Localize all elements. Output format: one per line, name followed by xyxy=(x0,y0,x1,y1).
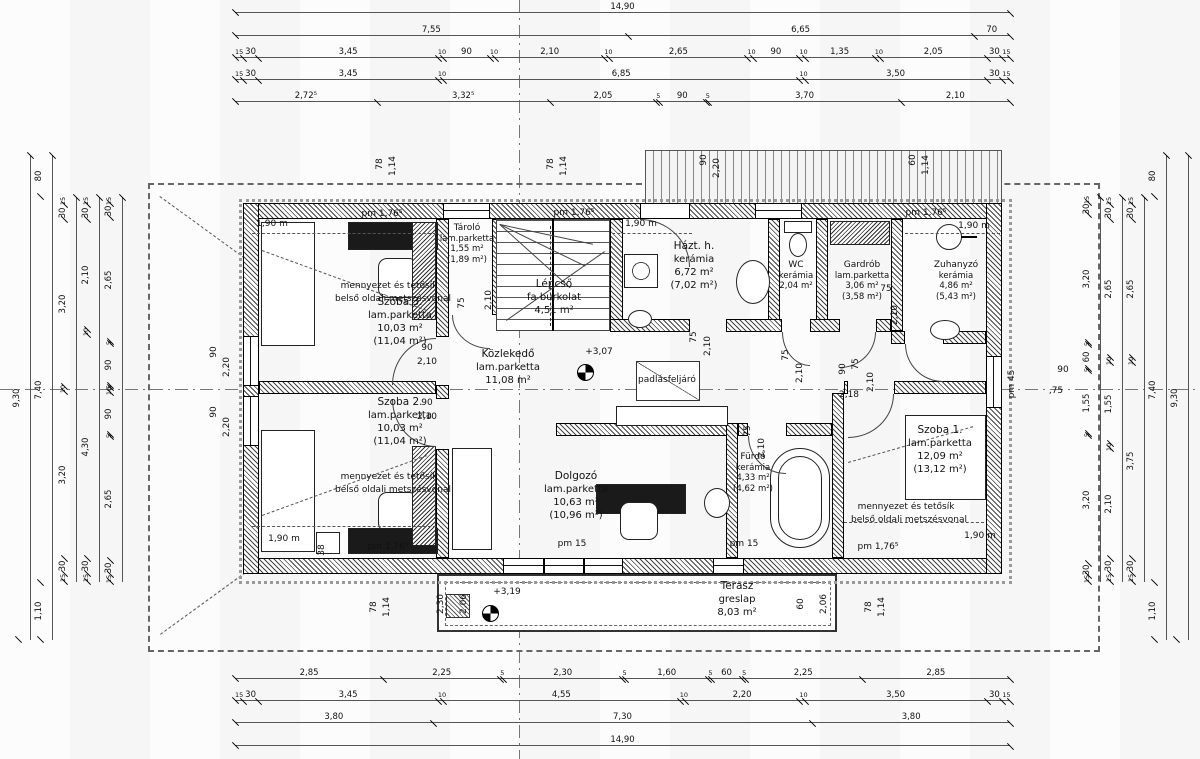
dim-segment: 15 xyxy=(65,574,77,582)
dim-segment: 90 xyxy=(659,90,706,102)
dim-label: 30 xyxy=(1082,565,1092,576)
dim-label: 30 xyxy=(58,561,68,572)
dim-label: 1,55 xyxy=(1082,393,1092,412)
plan-label: 2,20 xyxy=(222,417,232,437)
dim-label: 2,10 xyxy=(81,266,91,285)
dim-chain-right-total: 9,30 xyxy=(1188,155,1189,640)
dim-label: 15 xyxy=(1083,575,1091,583)
dim-chain-left-openings: 15302,655905109052,653015 xyxy=(122,197,123,582)
plan-label: 1,14 xyxy=(921,155,931,175)
plan-label: ,75 xyxy=(1049,386,1063,396)
dim-segment: 90 xyxy=(111,393,123,435)
dim-segment: 30 xyxy=(1133,205,1145,221)
dim-segment: 3,20 xyxy=(65,392,77,558)
plan-label: 1,14 xyxy=(559,156,569,176)
dim-segment: 15 xyxy=(1089,576,1101,582)
dim-segment: 15 xyxy=(1111,574,1123,582)
plan-label: 78 xyxy=(369,601,379,612)
dim-label: 30 xyxy=(104,206,114,217)
dim-label: 15 xyxy=(82,197,90,205)
dim-label: 1,10 xyxy=(1148,602,1158,621)
dim-label: 30 xyxy=(1082,204,1092,215)
dim-segment: 3,70 xyxy=(708,90,900,102)
dim-segment: 3,75 xyxy=(1133,363,1145,558)
plan-label: pm 1,76⁵ xyxy=(554,208,595,218)
dim-label: 30 xyxy=(1126,561,1136,572)
dim-segment: 80 xyxy=(41,155,53,197)
room-area-gross: (5,43 m²) xyxy=(934,292,978,303)
plan-label: padlásfeljáró xyxy=(638,375,696,385)
wall xyxy=(810,319,840,332)
dim-segment: 3,80 xyxy=(235,711,433,723)
dim-segment: 1,55 xyxy=(1089,371,1101,433)
dim-segment: 30 xyxy=(88,559,100,575)
dim-label: 15 xyxy=(59,197,67,205)
plan-label: 1,90 m xyxy=(958,221,990,231)
dim-label: 15 xyxy=(1127,574,1135,582)
dim-segment: 3,20 xyxy=(1089,215,1101,343)
plan-label: 75 xyxy=(880,284,891,294)
plan-label: 78 xyxy=(546,158,556,169)
plan-label: belső oldali metszésvonal xyxy=(335,485,451,495)
dim-chain-bottom-thirds: 3,807,303,80 xyxy=(235,722,1010,723)
dim-segment: 30 xyxy=(987,68,1003,80)
wall xyxy=(891,331,905,344)
sofa xyxy=(452,448,492,550)
bed xyxy=(261,222,315,346)
dim-label: 3,20 xyxy=(1082,490,1092,509)
dim-segment: 1,10 xyxy=(41,583,53,640)
dim-chain-bottom-detail: 2,852,2552,3051,6056052,252,85 xyxy=(235,678,1010,679)
room-name: Közlekedő xyxy=(476,348,540,361)
height-line xyxy=(905,233,1000,234)
dim-label: 15 xyxy=(1105,197,1113,205)
room-area: 12,09 m² xyxy=(908,450,972,463)
plan-label: 90 xyxy=(838,363,848,374)
dim-segment: 7,40 xyxy=(41,197,53,583)
dim-label: 3,20 xyxy=(58,294,68,313)
dim-label: 9,30 xyxy=(12,388,22,407)
dim-label: 15 xyxy=(82,574,90,582)
dim-chain-top-detail: 15303,451090102,10102,651090101,35102,05… xyxy=(235,57,1010,58)
dim-label: 1,55 xyxy=(1104,394,1114,413)
dim-segment: 60 xyxy=(711,667,742,679)
plan-label: 60 xyxy=(908,154,918,165)
dim-label: 15 xyxy=(105,574,113,582)
dim-segment: 2,25 xyxy=(383,667,500,679)
dim-segment: 1,55 xyxy=(1111,363,1123,444)
dim-segment: 30 xyxy=(1089,203,1101,215)
dim-label: 90 xyxy=(104,360,114,371)
dim-chain-right-openings: 15303,2056051,5553,203015 xyxy=(1100,197,1101,582)
plan-label: 75 xyxy=(743,425,753,436)
plan-label: 1,14 xyxy=(382,597,392,617)
dim-label: 90 xyxy=(104,409,114,420)
dim-label: 15 xyxy=(59,574,67,582)
plan-label: mennyezet és tetősík xyxy=(858,502,955,512)
dim-segment: 3,20 xyxy=(65,220,77,386)
dim-chain-right-rooms: 15302,65103,753015 xyxy=(1144,197,1145,582)
dim-segment: 7,55 xyxy=(235,24,628,36)
dim-label: 15 xyxy=(1127,197,1135,205)
plan-label: 75 xyxy=(851,358,861,369)
dim-segment: 30 xyxy=(88,205,100,221)
dim-segment: 2,65 xyxy=(111,218,123,342)
plan-label: 38 xyxy=(317,544,327,555)
dim-segment: 15 xyxy=(235,68,243,80)
room-area-gross: (10,96 m²) xyxy=(544,509,608,522)
dim-segment: 15 xyxy=(1002,46,1010,58)
sideboard xyxy=(616,406,728,426)
plan-label: 2,20 xyxy=(712,158,722,178)
room-area-gross: (11,04 m²) xyxy=(368,435,432,448)
dim-label: 80 xyxy=(1148,170,1158,181)
room-area: 4,33 m² xyxy=(733,473,773,484)
dim-label: 3,75 xyxy=(1126,452,1136,471)
dim-chain-top-rooms: 15303,45106,85103,503015 xyxy=(235,79,1010,80)
plan-label: pm 1,76⁵ xyxy=(368,542,409,552)
plan-label: 2,10 xyxy=(795,363,805,383)
room-name: Dolgozó xyxy=(544,470,608,483)
dim-segment: 9,30 xyxy=(1177,155,1189,640)
dim-segment: 30 xyxy=(65,559,77,575)
height-line xyxy=(612,233,692,234)
room-label-dolgozo: Dolgozó lam.parketta 10,63 m² (10,96 m²) xyxy=(544,470,608,522)
dim-segment: 2,10 xyxy=(1111,449,1123,558)
room-area-gross: (13,12 m²) xyxy=(908,463,972,476)
dim-segment: 3,50 xyxy=(805,689,987,701)
dim-segment: 2,65 xyxy=(609,46,747,58)
dim-segment: 15 xyxy=(1133,197,1145,205)
plan-label: 2,10 xyxy=(703,336,713,356)
plan-label: +3,19 xyxy=(493,587,521,597)
dim-segment: 15 xyxy=(111,575,123,582)
dim-segment: 14,90 xyxy=(235,734,1010,746)
plan-label: +3,07 xyxy=(585,347,613,357)
room-finish: fa burkolat xyxy=(527,291,581,304)
plan-label: 78 xyxy=(864,601,874,612)
window-mullion xyxy=(583,558,585,574)
dim-segment: 14,90 xyxy=(235,1,1010,13)
plan-label: pm 1,76⁵ xyxy=(906,208,947,218)
dim-label: 7,40 xyxy=(1148,380,1158,399)
dim-segment: 80 xyxy=(1155,155,1167,197)
dim-segment: 7,40 xyxy=(1155,197,1167,583)
dim-segment: 30 xyxy=(243,68,259,80)
wall xyxy=(894,381,986,394)
window xyxy=(243,336,259,386)
dim-segment: 2,65 xyxy=(1111,220,1123,358)
dim-segment: 2,25 xyxy=(745,667,862,679)
dim-label: 30 xyxy=(81,561,91,572)
room-name: Tároló xyxy=(440,223,494,234)
dim-chain-bottom-total: 14,90 xyxy=(235,745,1010,746)
plan-label: 1,90 m xyxy=(256,219,288,229)
dim-segment: 30 xyxy=(1111,205,1123,221)
plan-label: 78 xyxy=(375,158,385,169)
plan-label: 90 xyxy=(209,346,219,357)
dim-label: 2,65 xyxy=(1126,280,1136,299)
room-area: 10,03 m² xyxy=(368,422,432,435)
height-line xyxy=(252,233,436,234)
door-opening xyxy=(640,203,690,219)
plan-label: 90 xyxy=(421,343,432,353)
sink xyxy=(628,310,652,328)
dim-segment: 3,45 xyxy=(258,68,437,80)
dim-segment: 1,35 xyxy=(805,46,875,58)
room-name: Lépcső xyxy=(527,278,581,291)
closet-rail xyxy=(830,221,890,245)
dim-segment: 3,20 xyxy=(1089,436,1101,564)
dim-segment: 9,30 xyxy=(19,155,31,640)
dim-segment: 2,72⁵ xyxy=(235,90,377,102)
dim-segment: 2,20 xyxy=(685,689,799,701)
dim-label: 4,30 xyxy=(81,437,91,456)
plan-label: 2,06 xyxy=(819,594,829,614)
plan-label: 2,10 xyxy=(757,438,767,458)
room-area: 6,72 m² xyxy=(671,266,718,279)
dim-segment: 2,30 xyxy=(503,667,623,679)
room-area: 10,03 m² xyxy=(368,322,432,335)
room-area: 2,04 m² xyxy=(779,281,813,292)
dim-label: 30 xyxy=(1104,561,1114,572)
wall xyxy=(786,423,832,436)
shower-arm xyxy=(961,236,977,238)
dim-segment: 3,80 xyxy=(812,711,1010,723)
dim-chain-top-total: 14,90 xyxy=(235,12,1010,13)
plan-label: belső oldali metszésvonal xyxy=(851,515,967,525)
wall xyxy=(436,385,449,399)
dim-chain-right-bands: 807,401,10 xyxy=(1166,155,1167,640)
room-finish: lam.parketta xyxy=(544,483,608,496)
plan-label: 2,30 xyxy=(436,594,446,614)
dim-segment: 15 xyxy=(88,197,100,205)
room-name: Zuhanyzó xyxy=(934,260,978,271)
dim-label: 2,10 xyxy=(1104,494,1114,513)
dim-segment: 30 xyxy=(243,46,259,58)
plan-label: 75 xyxy=(689,331,699,342)
room-finish: lam.parketta xyxy=(476,361,540,374)
room-name: Gardrób xyxy=(835,260,889,271)
dim-segment: 2,85 xyxy=(862,667,1010,679)
plan-label: 1,14 xyxy=(388,156,398,176)
toilet-tank xyxy=(784,221,812,233)
plan-label: 90 xyxy=(699,154,709,165)
dim-chain-left-total: 9,30 xyxy=(30,155,31,640)
dim-segment: 30 xyxy=(243,689,259,701)
dim-label: 30 xyxy=(1126,207,1136,218)
plan-label: 90 xyxy=(209,406,219,417)
room-area: 1,55 m² xyxy=(440,244,494,255)
plan-label: 2,20 xyxy=(222,357,232,377)
room-finish: lam.parketta xyxy=(908,437,972,450)
plan-label: 2,10 xyxy=(890,305,900,325)
dim-chain-top-halves: 7,556,6570 xyxy=(235,35,1010,36)
plan-label: 1,14 xyxy=(877,597,887,617)
dim-label: 9,30 xyxy=(1170,388,1180,407)
dim-segment: 30 xyxy=(111,561,123,575)
plan-label: 1,90 m xyxy=(625,219,657,229)
dim-chain-left-rooms: 15303,20103,203015 xyxy=(76,197,77,582)
dim-segment: 2,05 xyxy=(880,46,987,58)
dim-segment: 3,50 xyxy=(805,68,987,80)
office-chair xyxy=(620,502,658,540)
room-label-furdo: Fürdő kerámia 4,33 m² (4,62 m²) xyxy=(733,452,773,494)
plan-label: 2,10 xyxy=(417,412,437,422)
dim-segment: 90 xyxy=(111,344,123,386)
dim-segment: 30 xyxy=(987,46,1003,58)
wall xyxy=(610,219,623,331)
dim-segment: 15 xyxy=(65,197,77,205)
dim-segment: 15 xyxy=(1133,574,1145,582)
window xyxy=(713,558,744,574)
level-marker xyxy=(577,364,594,381)
room-finish: kerámia xyxy=(733,463,773,474)
room-label-zuhanyzo: Zuhanyzó kerámia 4,86 m² (5,43 m²) xyxy=(934,260,978,302)
dim-label: 30 xyxy=(81,207,91,218)
dim-segment: 2,10 xyxy=(901,90,1010,102)
wall xyxy=(832,393,844,558)
room-label-gardrob: Gardrób lam.parketta 3,06 m² (3,58 m²) xyxy=(835,260,889,302)
room-finish: kerámia xyxy=(671,253,718,266)
dim-label: 2,65 xyxy=(1104,280,1114,299)
window-mullion xyxy=(543,558,545,574)
room-area: 4,86 m² xyxy=(934,281,978,292)
dim-segment: 30 xyxy=(111,204,123,218)
room-label-terasz: Terasz greslap 8,03 m² xyxy=(717,580,756,619)
room-label-wc: WC kerámia 2,04 m² xyxy=(779,260,813,292)
plan-label: belső oldali metszésvonal xyxy=(335,294,451,304)
dim-label: 80 xyxy=(34,170,44,181)
plan-label: mennyezet és tetősík xyxy=(341,472,438,482)
plan-label: mennyezet és tetősík xyxy=(341,281,438,291)
wall xyxy=(243,203,259,574)
dim-segment: 30 xyxy=(987,689,1003,701)
dim-label: 30 xyxy=(1104,207,1114,218)
room-finish: lam.parketta xyxy=(835,271,889,282)
plan-label: pm 1,76⁵ xyxy=(858,542,899,552)
wall xyxy=(816,219,828,331)
dim-segment: 2,10 xyxy=(88,220,100,329)
room-label-kozlekedo: Közlekedő lam.parketta 11,08 m² xyxy=(476,348,540,387)
dim-segment: 7,30 xyxy=(433,711,813,723)
plan-label: 1,90 m xyxy=(964,531,996,541)
window xyxy=(243,396,259,446)
wall xyxy=(726,319,782,332)
room-label-tarolo: Tároló lam.parketta 1,55 m² (1,89 m²) xyxy=(440,223,494,265)
room-name: Terasz xyxy=(717,580,756,593)
washbasin xyxy=(704,488,730,518)
room-name: WC xyxy=(779,260,813,271)
dim-segment: 15 xyxy=(88,574,100,582)
dim-chain-right-detail: 15302,65101,55102,103015 xyxy=(1122,197,1123,582)
plan-label: 75 xyxy=(781,349,791,360)
dim-segment: 3,32⁵ xyxy=(377,90,550,102)
dim-label: 60 xyxy=(1082,352,1092,363)
room-label-hazth: Házt. h. kerámia 6,72 m² (7,02 m²) xyxy=(671,240,718,292)
room-area: 8,03 m² xyxy=(717,606,756,619)
dim-segment: 2,85 xyxy=(235,667,383,679)
dim-segment: 15 xyxy=(1111,197,1123,205)
dim-label: 30 xyxy=(104,563,114,574)
dim-label: 7,40 xyxy=(34,380,44,399)
dim-segment: 15 xyxy=(235,46,243,58)
dim-segment: 6,65 xyxy=(628,24,974,36)
plan-label: 2,06 xyxy=(459,594,469,614)
plan-label: 2,10 xyxy=(866,372,876,392)
room-area-gross: (7,02 m²) xyxy=(671,279,718,292)
room-finish: lam.parketta xyxy=(440,234,494,245)
dim-segment: 2,65 xyxy=(111,437,123,561)
window xyxy=(986,356,1002,408)
dim-segment: 2,05 xyxy=(550,90,657,102)
plan-label: pm 1,76⁵ xyxy=(362,209,403,219)
room-area-gross: (4,62 m²) xyxy=(733,484,773,495)
room-area: 11,08 m² xyxy=(476,374,540,387)
window xyxy=(755,203,802,219)
boiler xyxy=(736,260,770,304)
dim-segment: 30 xyxy=(1111,559,1123,575)
dim-label: 1,10 xyxy=(34,602,44,621)
dim-label: 15 xyxy=(1105,574,1113,582)
level-marker xyxy=(482,605,499,622)
dim-segment: 1,60 xyxy=(625,667,708,679)
dim-segment: 15 xyxy=(111,197,123,204)
floor-plan-drawing: Szoba 3. lam.parketta 10,03 m² (11,04 m²… xyxy=(0,0,1200,759)
dim-segment: 6,85 xyxy=(443,68,799,80)
room-finish: lam.parketta xyxy=(368,309,432,322)
dim-segment: 4,55 xyxy=(443,689,680,701)
plan-label: 1,90 m xyxy=(268,534,300,544)
dim-segment: 90 xyxy=(753,46,800,58)
height-line xyxy=(252,526,436,527)
plan-label: 90 xyxy=(421,398,432,408)
plan-label: 2,18 xyxy=(839,390,859,400)
room-finish: kerámia xyxy=(779,271,813,282)
room-finish: kerámia xyxy=(934,271,978,282)
dim-segment: 60 xyxy=(1089,345,1101,369)
room-label-szoba1: Szoba 1. lam.parketta 12,09 m² (13,12 m²… xyxy=(908,424,972,476)
room-finish: greslap xyxy=(717,593,756,606)
room-area: 10,63 m² xyxy=(544,496,608,509)
plan-label: 90 xyxy=(1057,365,1068,375)
dim-segment: 70 xyxy=(974,24,1010,36)
toilet-bowl xyxy=(789,233,807,257)
dim-segment: 15 xyxy=(235,689,243,701)
dim-segment: 3,45 xyxy=(258,46,437,58)
shower-drain xyxy=(930,320,960,340)
dim-label: 2,65 xyxy=(104,490,114,509)
plan-label: 2,10 xyxy=(484,290,494,310)
dim-label: 2,65 xyxy=(104,270,114,289)
dim-segment: 2,65 xyxy=(1133,220,1145,358)
plan-label: pm 15 xyxy=(730,539,759,549)
wall xyxy=(243,203,1002,219)
plan-label: pm 15 xyxy=(558,539,587,549)
room-area-gross: (1,89 m²) xyxy=(440,255,494,266)
dim-chain-left-detail: 15302,10104,303015 xyxy=(99,197,100,582)
dim-segment: 1,10 xyxy=(1155,583,1167,640)
plan-label: 2,10 xyxy=(417,357,437,367)
window xyxy=(443,203,490,219)
dim-segment: 2,10 xyxy=(495,46,604,58)
dim-chain-left-bands: 807,401,10 xyxy=(52,155,53,640)
dim-segment: 4,30 xyxy=(88,335,100,559)
dim-segment: 15 xyxy=(1002,68,1010,80)
wardrobe xyxy=(412,446,436,546)
dim-segment: 3,45 xyxy=(258,689,437,701)
dim-segment: 15 xyxy=(1002,689,1010,701)
